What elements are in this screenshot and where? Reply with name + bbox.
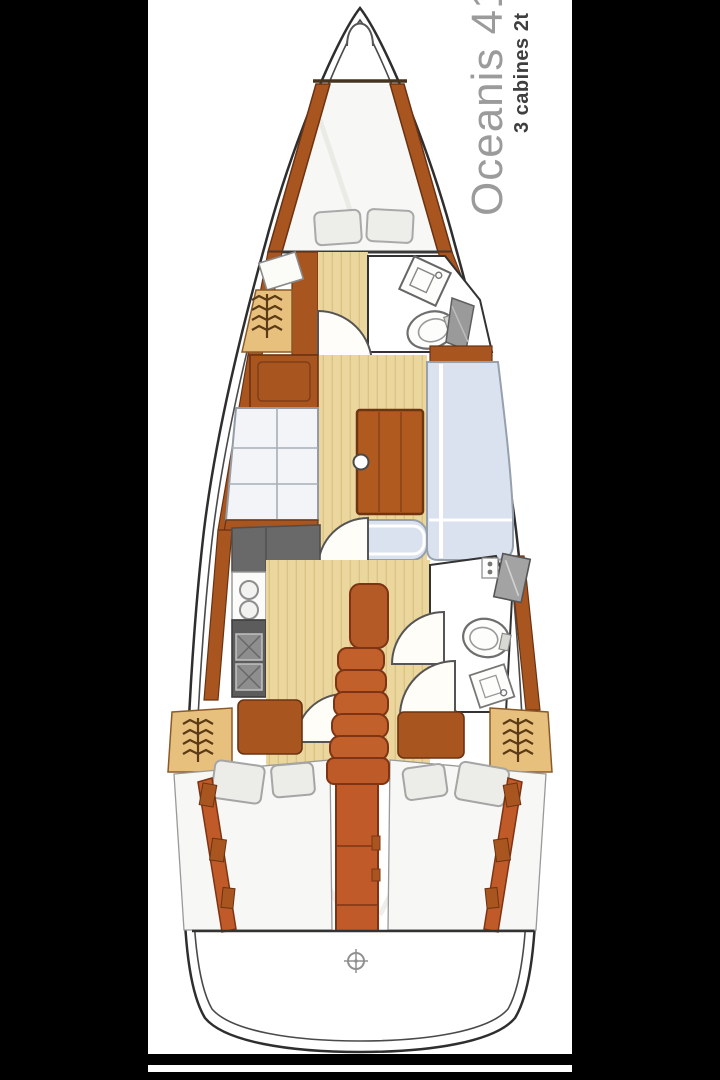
sink-icon (240, 581, 258, 599)
pillow (366, 209, 414, 243)
head-shelf (482, 558, 498, 578)
bottom-bar-upper (148, 1054, 572, 1065)
companionway-steps (330, 648, 388, 760)
engine-box-latch (372, 869, 380, 881)
port-settee (226, 408, 318, 520)
cabin-cabinet-wood (238, 700, 302, 754)
boat-layout-screenshot: Oceanis 41 3 cabines 2t (0, 0, 720, 1080)
sofa-shelf-wood (430, 346, 492, 362)
bottom-bar-lower (148, 1072, 572, 1080)
engine-box-latch (372, 836, 380, 850)
faucet-icon (488, 570, 493, 575)
engine-compartment (336, 784, 378, 931)
hanging-locker-aft-starboard (490, 708, 552, 772)
sink-icon (240, 601, 258, 619)
pillow (271, 762, 316, 798)
letterbox-right (572, 0, 720, 1080)
table-knob (354, 455, 369, 470)
steps-base (327, 758, 389, 784)
faucet-icon (488, 562, 493, 567)
boat-model-title: Oceanis 41 (463, 0, 512, 216)
letterbox-left (0, 0, 148, 1080)
cabin-cabinet-wood (398, 712, 464, 758)
companionway-landing (350, 584, 388, 648)
pillow (211, 760, 266, 805)
saloon-table (354, 410, 424, 514)
floorplan-svg: Oceanis 41 3 cabines 2t (0, 0, 720, 1080)
pillow (314, 209, 362, 245)
boat-variant-subtitle: 3 cabines 2t (511, 12, 533, 133)
pillow (454, 761, 510, 807)
pillow (402, 763, 448, 801)
aft-cabin-port (168, 694, 344, 932)
